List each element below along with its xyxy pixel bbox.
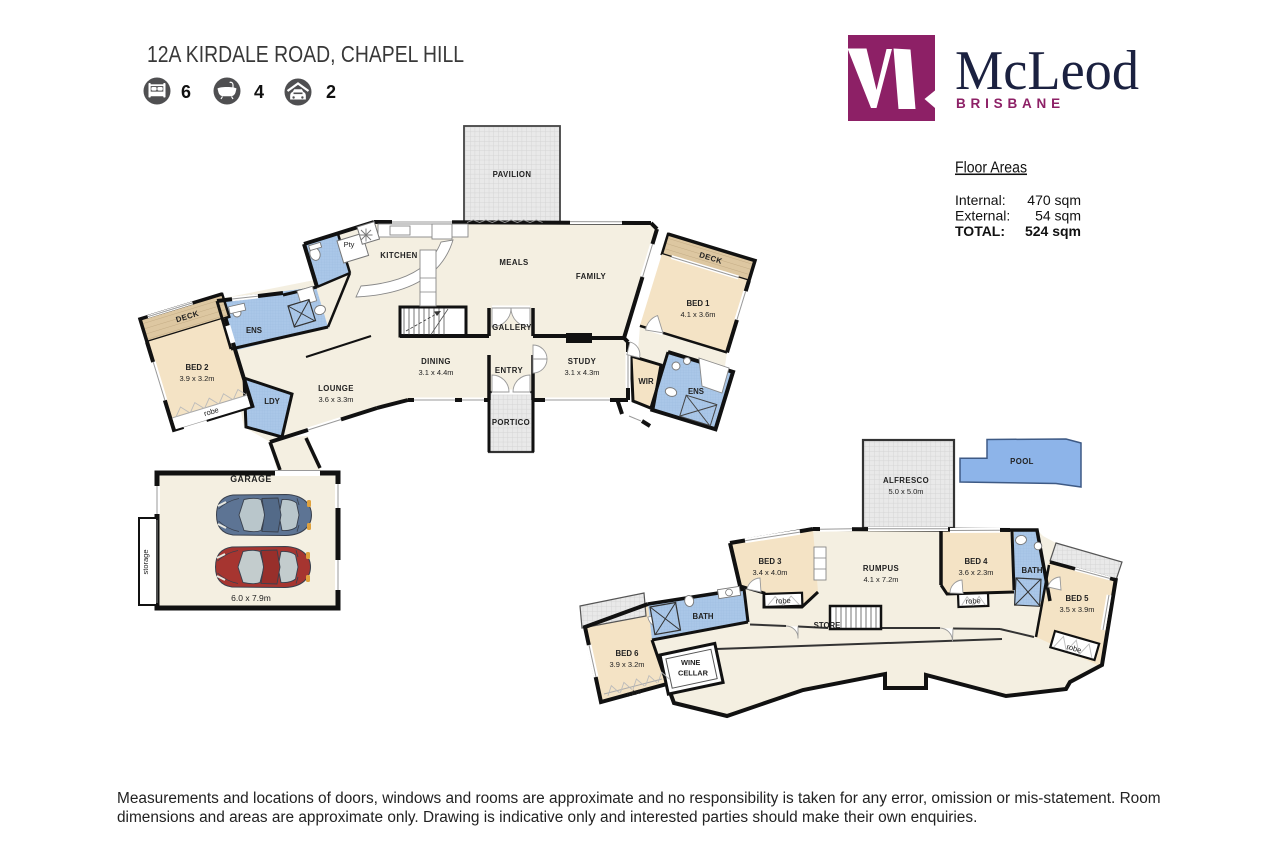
svg-text:4: 4 xyxy=(254,82,264,102)
svg-text:CELLAR: CELLAR xyxy=(678,669,709,678)
svg-text:3.9 x 3.2m: 3.9 x 3.2m xyxy=(179,374,214,383)
svg-text:BRISBANE: BRISBANE xyxy=(956,96,1065,111)
svg-text:MEALS: MEALS xyxy=(499,258,528,267)
svg-text:dimensions and areas are appro: dimensions and areas are approximate onl… xyxy=(117,809,977,826)
svg-text:6.0 x 7.9m: 6.0 x 7.9m xyxy=(231,593,271,603)
svg-text:RUMPUS: RUMPUS xyxy=(863,564,899,573)
svg-text:54 sqm: 54 sqm xyxy=(1035,208,1081,224)
svg-text:PAVILION: PAVILION xyxy=(493,170,532,179)
svg-text:GARAGE: GARAGE xyxy=(230,474,272,484)
svg-text:LOUNGE: LOUNGE xyxy=(318,384,354,393)
svg-text:5.0 x 5.0m: 5.0 x 5.0m xyxy=(888,487,923,496)
svg-text:BED 2: BED 2 xyxy=(186,363,210,372)
svg-text:PORTICO: PORTICO xyxy=(492,418,530,427)
svg-text:POOL: POOL xyxy=(1010,457,1034,466)
svg-text:ALFRESCO: ALFRESCO xyxy=(883,476,929,485)
svg-text:BED 6: BED 6 xyxy=(616,649,640,658)
svg-text:470 sqm: 470 sqm xyxy=(1027,192,1081,208)
svg-text:BATH: BATH xyxy=(692,612,713,621)
svg-text:DINING: DINING xyxy=(421,357,451,366)
svg-text:ENTRY: ENTRY xyxy=(495,366,524,375)
svg-text:Pty: Pty xyxy=(344,240,355,249)
svg-text:TOTAL:: TOTAL: xyxy=(955,223,1005,239)
svg-text:Measurements and locations of: Measurements and locations of doors, win… xyxy=(117,790,1161,807)
svg-text:WIR: WIR xyxy=(638,377,654,386)
svg-text:4.1 x 7.2m: 4.1 x 7.2m xyxy=(863,575,898,584)
svg-text:ENS: ENS xyxy=(246,326,262,335)
svg-text:3.9 x 3.2m: 3.9 x 3.2m xyxy=(609,660,644,669)
svg-text:ENS: ENS xyxy=(688,387,704,396)
svg-text:WINE: WINE xyxy=(681,658,700,667)
svg-text:3.1 x 4.3m: 3.1 x 4.3m xyxy=(564,368,599,377)
svg-text:3.4 x 4.0m: 3.4 x 4.0m xyxy=(752,568,787,577)
svg-text:BED 4: BED 4 xyxy=(965,557,989,566)
svg-text:BATH: BATH xyxy=(1021,566,1042,575)
svg-text:STUDY: STUDY xyxy=(568,357,597,366)
svg-text:FAMILY: FAMILY xyxy=(576,272,607,281)
svg-text:Internal:: Internal: xyxy=(955,192,1006,208)
svg-text:LDY: LDY xyxy=(264,397,280,406)
svg-text:GALLERY: GALLERY xyxy=(492,323,532,332)
svg-text:Floor Areas: Floor Areas xyxy=(955,160,1027,177)
svg-text:3.1 x 4.4m: 3.1 x 4.4m xyxy=(418,368,453,377)
svg-text:3.6 x 2.3m: 3.6 x 2.3m xyxy=(958,568,993,577)
svg-text:BED 5: BED 5 xyxy=(1066,594,1090,603)
svg-text:2: 2 xyxy=(326,82,336,102)
svg-text:6: 6 xyxy=(181,82,191,102)
svg-text:storage: storage xyxy=(141,549,150,574)
svg-text:3.6 x 3.3m: 3.6 x 3.3m xyxy=(318,395,353,404)
svg-text:BED 3: BED 3 xyxy=(759,557,783,566)
svg-text:524 sqm: 524 sqm xyxy=(1025,223,1081,239)
svg-text:robe: robe xyxy=(966,596,981,606)
svg-text:BED 1: BED 1 xyxy=(687,299,711,308)
svg-text:4.1 x 3.6m: 4.1 x 3.6m xyxy=(680,310,715,319)
svg-text:robe: robe xyxy=(776,596,791,606)
svg-text:McLeod: McLeod xyxy=(955,40,1139,102)
svg-text:12A KIRDALE ROAD, CHAPEL HILL: 12A KIRDALE ROAD, CHAPEL HILL xyxy=(147,41,464,67)
svg-text:3.5 x 3.9m: 3.5 x 3.9m xyxy=(1059,605,1094,614)
svg-text:STORE: STORE xyxy=(814,621,841,630)
svg-text:External:: External: xyxy=(955,208,1010,224)
svg-text:KITCHEN: KITCHEN xyxy=(380,251,417,260)
